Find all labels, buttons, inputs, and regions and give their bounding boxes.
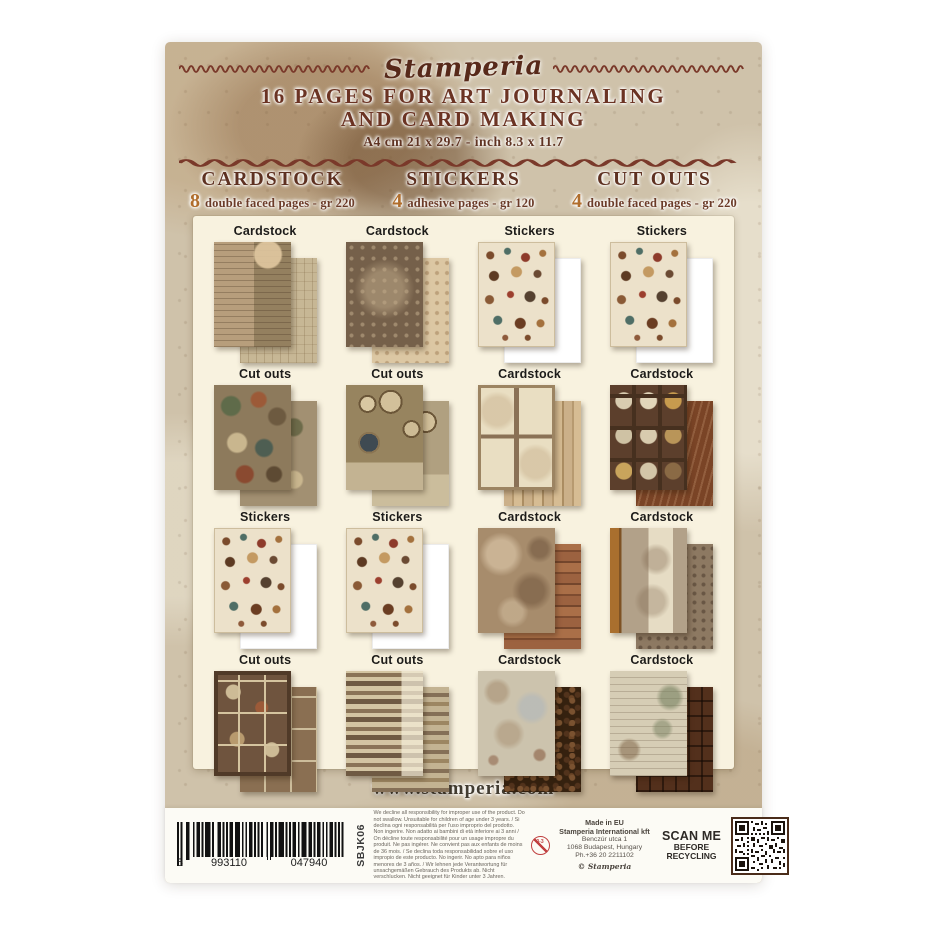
age-warning-label: 0-3 (536, 839, 543, 845)
sku-code: SBJK06 (356, 824, 367, 867)
copyright-line: © Stamperia (557, 863, 653, 871)
bottom-label-strip: 5 993110 047940 SBJK06 We decline all re… (165, 808, 762, 883)
cell-label: Cut outs (371, 367, 423, 381)
address-line: 1068 Budapest, Hungary (557, 844, 653, 852)
cell-label: Cardstock (234, 224, 297, 238)
barcode-digit-group: 047940 (271, 857, 347, 869)
page-thumbnail-front (214, 671, 291, 776)
copyright-brand: Stamperia (588, 862, 631, 871)
grid-cell-1: Cardstock (199, 220, 331, 363)
header: Stamperia 16 PAGES FOR ART JOURNALING AN… (165, 42, 762, 213)
page-thumbnail-front (478, 242, 555, 347)
cell-label: Stickers (505, 224, 555, 238)
grid-cell-7: Cardstock (464, 363, 596, 506)
page-thumbnail-front (346, 242, 423, 347)
barcode-digit-group: 993110 (191, 857, 267, 869)
page-thumbnail-front (214, 528, 291, 633)
manufacturer-name: Stamperia International kft (557, 828, 653, 836)
scan-me-text: SCAN ME BEFORE RECYCLING (660, 830, 724, 861)
grid-cell-12: Cardstock (596, 506, 728, 649)
grid-cell-9: Stickers (199, 506, 331, 649)
cell-label: Cardstock (630, 653, 693, 667)
cell-label: Cardstock (366, 224, 429, 238)
cell-label: Cut outs (239, 367, 291, 381)
content-columns: CARDSTOCK 8 double faced pages - gr 220 … (165, 167, 762, 213)
column-desc: adhesive pages - gr 120 (407, 196, 534, 211)
grid-cell-16: Cardstock (596, 649, 728, 792)
page-thumbnail-front (214, 385, 291, 490)
cell-label: Cardstock (498, 510, 561, 524)
stamperia-logo: Stamperia (384, 53, 544, 83)
column-count: 8 (190, 190, 200, 213)
column-name: STICKERS (368, 169, 559, 190)
column-stickers: STICKERS 4 adhesive pages - gr 120 (368, 169, 559, 213)
cell-label: Stickers (240, 510, 290, 524)
qr-code (731, 817, 789, 875)
grid-cell-10: Stickers (331, 506, 463, 649)
grid-cell-13: Cut outs (199, 649, 331, 792)
grid-cell-14: Cut outs (331, 649, 463, 792)
age-warning-icon: 0-3 (531, 836, 550, 855)
product-back-panel: Stamperia 16 PAGES FOR ART JOURNALING AN… (165, 42, 762, 883)
page-thumbnail-front (478, 385, 555, 490)
page-thumbnail-front (610, 671, 687, 776)
barcode-digits: 5 993110 047940 (177, 857, 349, 869)
column-desc: double faced pages - gr 220 (205, 196, 355, 211)
column-cardstock: CARDSTOCK 8 double faced pages - gr 220 (177, 169, 368, 213)
column-cutouts: CUT OUTS 4 double faced pages - gr 220 (559, 169, 750, 213)
grid-cell-8: Cardstock (596, 363, 728, 506)
wavy-line-left (179, 63, 374, 73)
page-thumbnail-front (346, 528, 423, 633)
cell-label: Stickers (372, 510, 422, 524)
column-desc: double faced pages - gr 220 (587, 196, 737, 211)
cell-label: Cardstock (630, 510, 693, 524)
safety-disclaimer: We decline all responsibility for improp… (374, 810, 550, 880)
headline-line2: AND CARD MAKING (165, 108, 762, 131)
grid-cell-15: Cardstock (464, 649, 596, 792)
copyright-symbol: © (578, 862, 586, 871)
cell-label: Cut outs (371, 653, 423, 667)
brand-row: Stamperia (165, 55, 762, 81)
cell-label: Cardstock (630, 367, 693, 381)
page-thumbnail-front (478, 671, 555, 776)
cell-label: Cut outs (239, 653, 291, 667)
grid-cell-2: Cardstock (331, 220, 463, 363)
disclaimer-text: We decline all responsibility for improp… (374, 810, 525, 880)
page-thumbnail-front (214, 242, 291, 347)
page-thumbnail-front (610, 528, 687, 633)
column-name: CARDSTOCK (177, 169, 368, 190)
cell-label: Cardstock (498, 367, 561, 381)
grid-cell-3: Stickers (464, 220, 596, 363)
barcode-digit-group: 5 (177, 857, 189, 869)
page-thumbnail-front (610, 242, 687, 347)
cell-label: Stickers (637, 224, 687, 238)
address-line: Benczúr utca 1 (557, 836, 653, 844)
headline-line1: 16 PAGES FOR ART JOURNALING (165, 85, 762, 108)
page-thumbnail-front (478, 528, 555, 633)
qr-code-image (735, 821, 785, 871)
column-name: CUT OUTS (559, 169, 750, 190)
phone-line: Ph.+36 20 2211102 (557, 852, 653, 860)
grid-cell-11: Cardstock (464, 506, 596, 649)
grid-cell-4: Stickers (596, 220, 728, 363)
scan-me-line: RECYCLING (660, 852, 724, 861)
column-count: 4 (572, 190, 582, 213)
column-count: 4 (392, 190, 402, 213)
page-thumbnail-front (610, 385, 687, 490)
wavy-divider (179, 157, 748, 167)
wavy-line-right (553, 63, 748, 73)
page-thumbnail-front (346, 671, 423, 776)
barcode: 5 993110 047940 (177, 822, 349, 869)
size-spec: A4 cm 21 x 29.7 - inch 8.3 x 11.7 (165, 134, 762, 150)
grid-cell-5: Cut outs (199, 363, 331, 506)
cell-label: Cardstock (498, 653, 561, 667)
grid-cell-6: Cut outs (331, 363, 463, 506)
manufacturer-info: Made in EU Stamperia International kft B… (557, 819, 653, 871)
page-thumbnail-front (346, 385, 423, 490)
thumbnails-panel: Cardstock Cardstock Stickers Stickers Cu… (193, 216, 734, 769)
